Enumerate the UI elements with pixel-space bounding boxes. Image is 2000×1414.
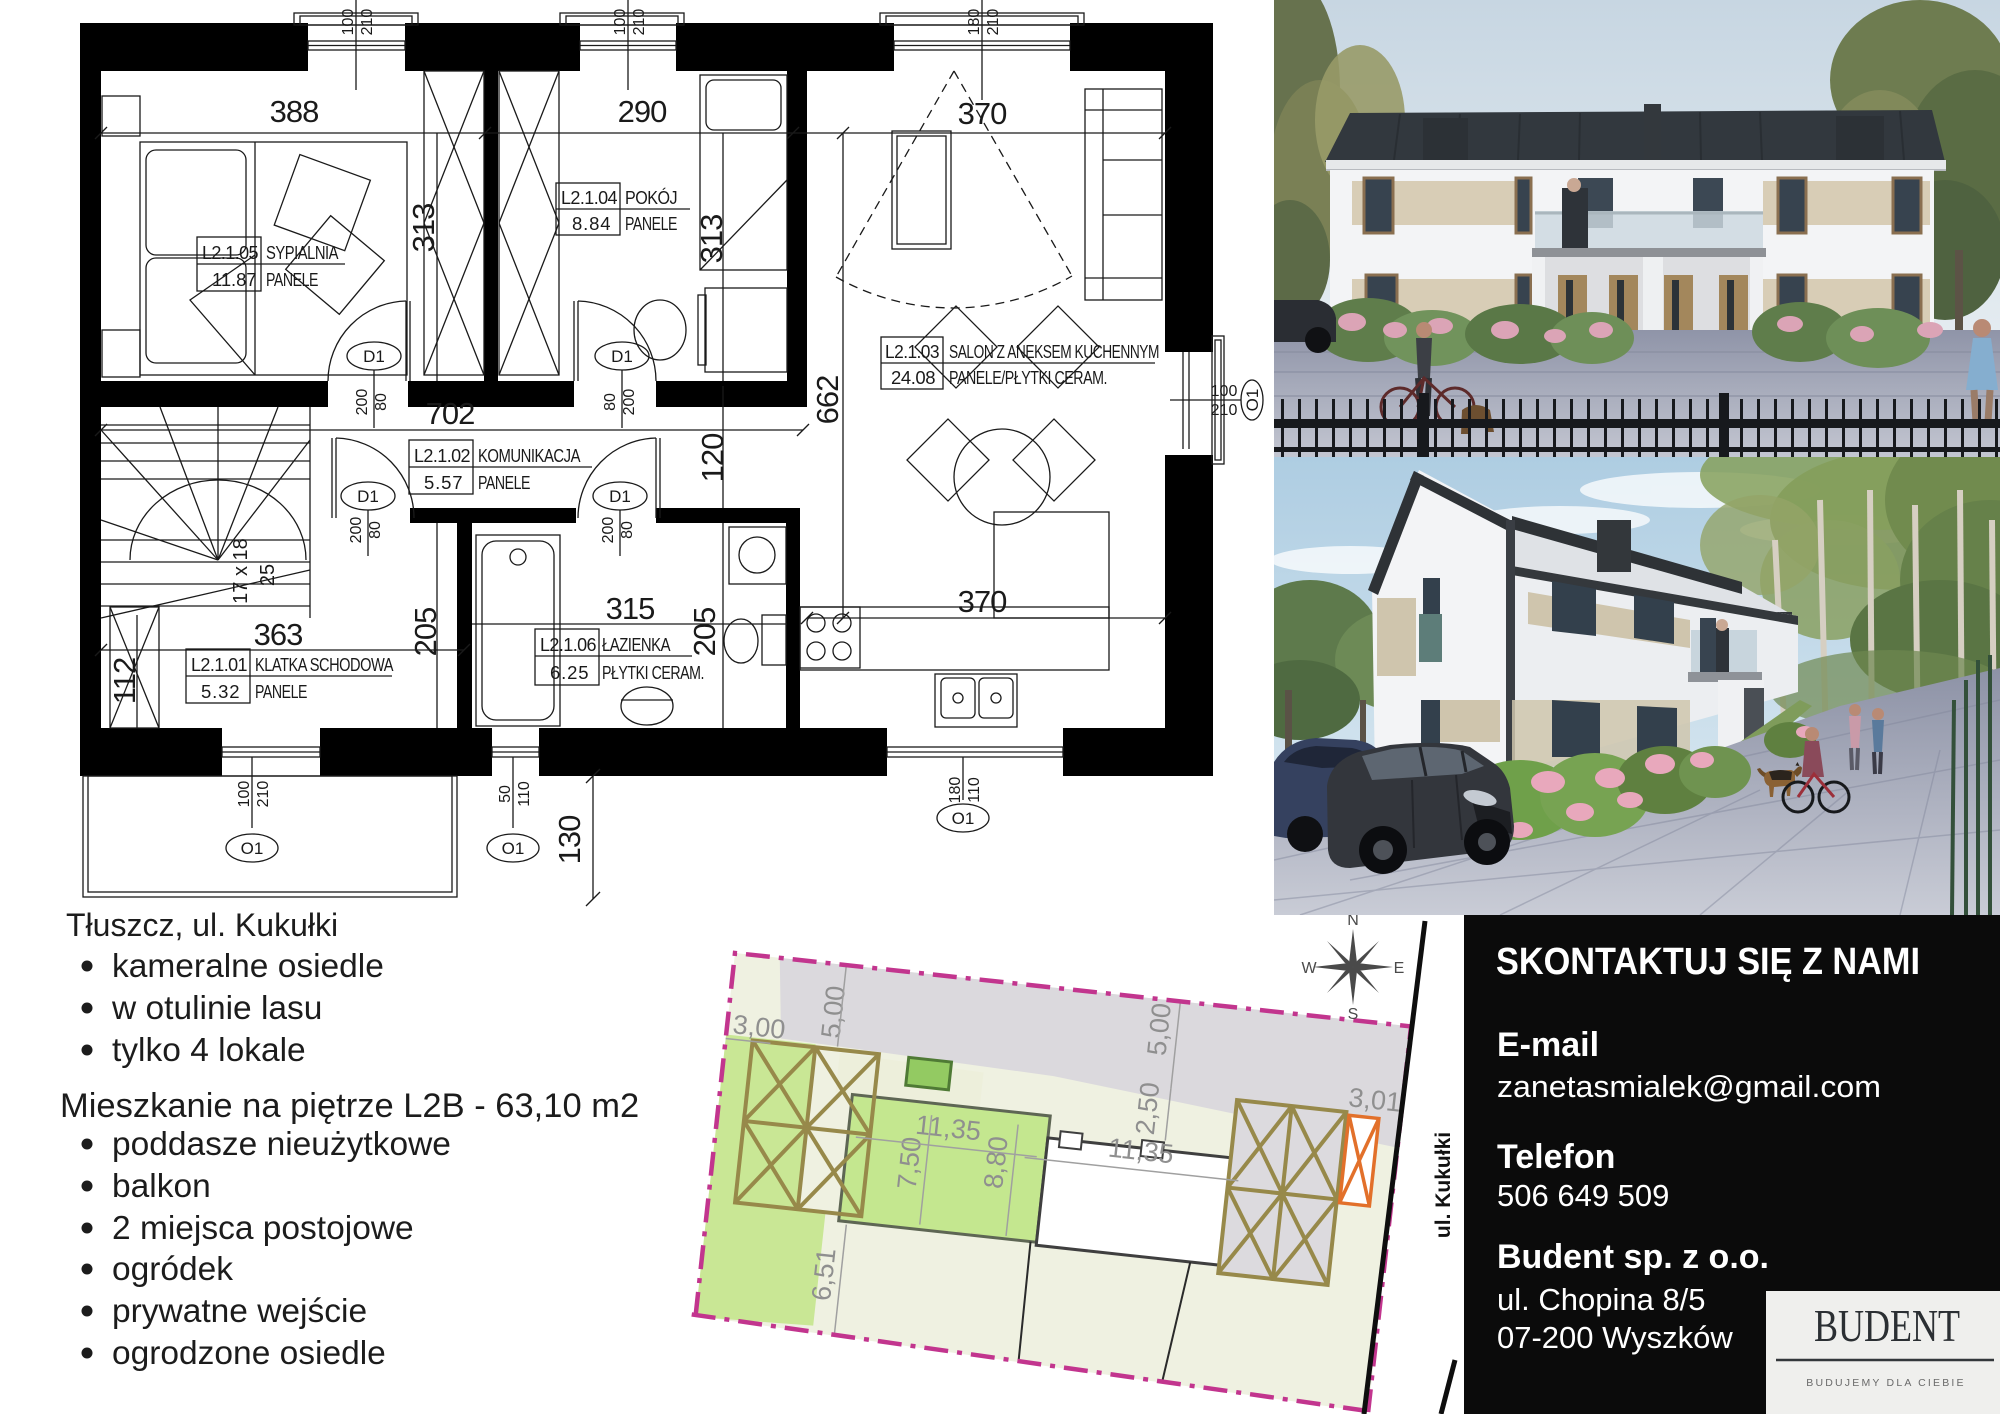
svg-text:100: 100 [340, 9, 357, 36]
svg-text:5.32: 5.32 [201, 681, 239, 702]
svg-text:313: 313 [694, 215, 729, 264]
svg-text:205: 205 [687, 608, 722, 657]
svg-text:KOMUNIKACJA: KOMUNIKACJA [478, 445, 581, 466]
svg-text:kameralne osiedle: kameralne osiedle [112, 948, 384, 985]
svg-text:ul. Chopina 8/5: ul. Chopina 8/5 [1497, 1282, 1706, 1317]
svg-text:3,01: 3,01 [1347, 1082, 1402, 1118]
svg-text:11.87: 11.87 [212, 269, 256, 290]
svg-text:07-200 Wyszków: 07-200 Wyszków [1497, 1320, 1733, 1355]
svg-text:Telefon: Telefon [1497, 1138, 1615, 1176]
svg-text:80: 80 [619, 521, 636, 539]
svg-text:SKONTAKTUJ SIĘ Z NAMI: SKONTAKTUJ SIĘ Z NAMI [1496, 941, 1920, 983]
svg-text:8.84: 8.84 [572, 213, 610, 234]
svg-text:Tłuszcz, ul. Kukułki: Tłuszcz, ul. Kukułki [66, 907, 338, 943]
svg-text:PANELE: PANELE [266, 269, 318, 290]
svg-text:PANELE/PŁYTKI CERAM.: PANELE/PŁYTKI CERAM. [949, 367, 1107, 388]
svg-text:L2.1.05: L2.1.05 [202, 242, 258, 263]
svg-text:2 miejsca postojowe: 2 miejsca postojowe [112, 1210, 414, 1247]
svg-text:W: W [1301, 960, 1317, 977]
svg-text:120: 120 [695, 433, 730, 482]
svg-text:L2.1.03: L2.1.03 [885, 341, 939, 362]
svg-text:PANELE: PANELE [255, 681, 307, 702]
svg-text:SALON Z ANEKSEM KUCHENNYM: SALON Z ANEKSEM KUCHENNYM [949, 341, 1159, 362]
svg-text:L2.1.01: L2.1.01 [191, 654, 247, 675]
svg-text:112: 112 [107, 658, 142, 704]
svg-text:200: 200 [621, 389, 638, 416]
svg-text:PANELE: PANELE [625, 213, 677, 234]
svg-text:2,50: 2,50 [1130, 1081, 1166, 1136]
svg-text:110: 110 [516, 781, 533, 807]
svg-text:506 649 509: 506 649 509 [1497, 1178, 1669, 1213]
svg-text:SYPIALNIA: SYPIALNIA [266, 242, 339, 263]
svg-text:POKÓJ: POKÓJ [625, 187, 677, 208]
svg-text:210: 210 [631, 9, 648, 36]
svg-text:Budent sp. z o.o.: Budent sp. z o.o. [1497, 1238, 1769, 1276]
svg-text:KLATKA SCHODOWA: KLATKA SCHODOWA [255, 654, 394, 675]
svg-text:25: 25 [257, 564, 279, 586]
svg-text:O1: O1 [502, 839, 525, 858]
svg-text:388: 388 [270, 94, 319, 129]
svg-text:24.08: 24.08 [891, 367, 935, 388]
svg-text:ul. Kukułki: ul. Kukułki [1432, 1132, 1455, 1238]
svg-text:w otulinie lasu: w otulinie lasu [111, 990, 322, 1027]
svg-text:180: 180 [966, 9, 983, 36]
svg-text:tylko 4 lokale: tylko 4 lokale [112, 1032, 306, 1069]
svg-text:Mieszkanie na piętrze L2B - 63: Mieszkanie na piętrze L2B - 63,10 m2 [60, 1087, 639, 1125]
svg-text:80: 80 [367, 521, 384, 539]
svg-text:80: 80 [373, 393, 390, 411]
svg-text:BUDUJEMY DLA CIEBIE: BUDUJEMY DLA CIEBIE [1806, 1377, 1965, 1389]
svg-text:80: 80 [602, 393, 619, 411]
svg-text:ŁAZIENKA: ŁAZIENKA [602, 634, 671, 655]
svg-text:363: 363 [254, 617, 303, 652]
svg-text:313: 313 [406, 204, 441, 253]
svg-text:5.57: 5.57 [424, 472, 462, 493]
svg-text:200: 200 [354, 389, 371, 416]
svg-text:S: S [1348, 1006, 1359, 1023]
svg-text:5,00: 5,00 [1141, 1002, 1177, 1057]
svg-text:ogródek: ogródek [112, 1251, 233, 1288]
svg-text:205: 205 [408, 608, 443, 657]
svg-text:balkon: balkon [112, 1168, 211, 1205]
svg-text:290: 290 [618, 94, 667, 129]
svg-text:210: 210 [985, 9, 1002, 36]
svg-text:zanetasmialek@gmail.com: zanetasmialek@gmail.com [1497, 1069, 1881, 1104]
svg-text:17 x 18: 17 x 18 [230, 538, 252, 604]
svg-text:100: 100 [612, 9, 629, 36]
svg-text:D1: D1 [609, 487, 631, 506]
svg-text:210: 210 [1211, 402, 1238, 419]
svg-text:L2.1.06: L2.1.06 [540, 634, 596, 655]
svg-text:O1: O1 [952, 809, 975, 828]
svg-text:E: E [1394, 960, 1405, 977]
svg-text:200: 200 [600, 517, 617, 544]
svg-text:100: 100 [236, 781, 253, 808]
svg-text:210: 210 [255, 781, 272, 808]
svg-text:PANELE: PANELE [478, 472, 530, 493]
svg-text:180: 180 [947, 777, 964, 804]
svg-text:D1: D1 [363, 347, 385, 366]
svg-text:6,51: 6,51 [806, 1247, 842, 1302]
svg-text:702: 702 [426, 396, 475, 431]
svg-text:BUDENT: BUDENT [1814, 1300, 1960, 1351]
svg-text:662: 662 [810, 376, 845, 425]
svg-text:L2.1.04: L2.1.04 [561, 187, 617, 208]
svg-text:D1: D1 [611, 347, 633, 366]
svg-text:110: 110 [966, 777, 983, 803]
svg-text:O1: O1 [241, 839, 264, 858]
svg-text:prywatne wejście: prywatne wejście [112, 1293, 367, 1330]
svg-text:370: 370 [958, 96, 1007, 131]
svg-text:315: 315 [606, 591, 655, 626]
svg-text:200: 200 [348, 517, 365, 544]
svg-text:210: 210 [359, 9, 376, 36]
svg-text:8,80: 8,80 [978, 1135, 1014, 1190]
svg-text:370: 370 [958, 584, 1007, 619]
svg-text:L2.1.02: L2.1.02 [414, 445, 470, 466]
svg-text:100: 100 [1211, 383, 1238, 400]
svg-text:6.25: 6.25 [550, 662, 588, 683]
svg-text:D1: D1 [357, 487, 379, 506]
svg-text:E-mail: E-mail [1497, 1026, 1599, 1064]
svg-text:5,00: 5,00 [815, 984, 851, 1039]
svg-text:50: 50 [497, 785, 514, 803]
svg-text:O1: O1 [1243, 389, 1262, 412]
svg-text:poddasze nieużytkowe: poddasze nieużytkowe [112, 1126, 451, 1163]
svg-text:PŁYTKI CERAM.: PŁYTKI CERAM. [602, 662, 704, 683]
svg-text:130: 130 [552, 815, 587, 864]
svg-text:ogrodzone osiedle: ogrodzone osiedle [112, 1335, 386, 1372]
